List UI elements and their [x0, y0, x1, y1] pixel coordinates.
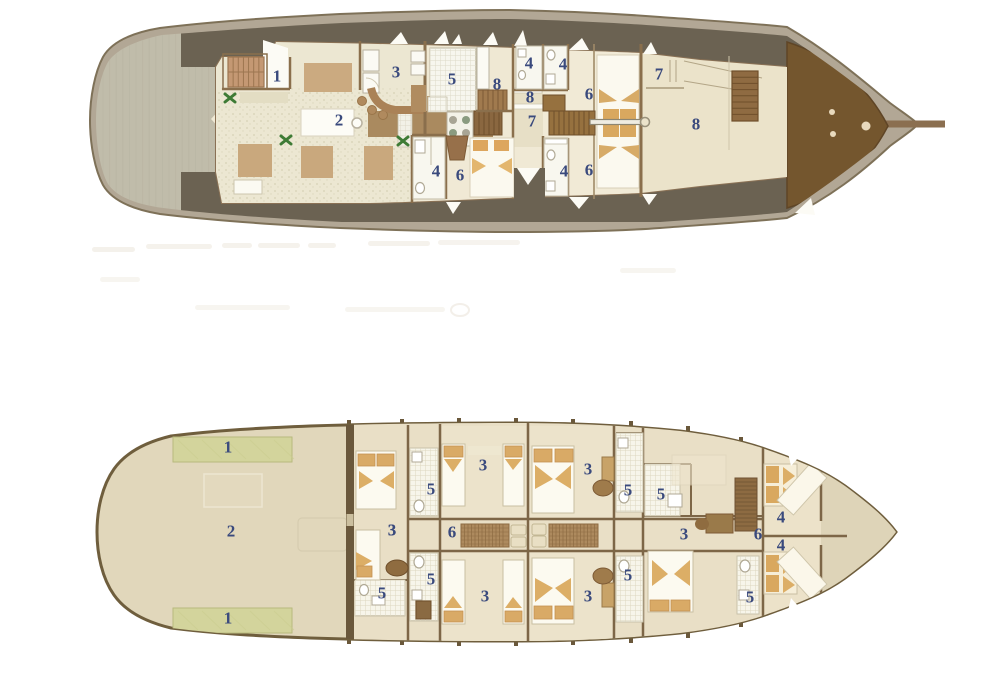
svg-text:5: 5: [746, 588, 755, 607]
svg-text:3: 3: [680, 525, 689, 544]
svg-text:6: 6: [585, 85, 594, 104]
svg-text:1: 1: [273, 67, 282, 86]
svg-text:1: 1: [224, 438, 233, 457]
svg-text:6: 6: [456, 166, 465, 185]
svg-text:5: 5: [624, 481, 633, 500]
svg-text:7: 7: [528, 112, 537, 131]
svg-text:5: 5: [624, 566, 633, 585]
svg-text:4: 4: [432, 162, 441, 181]
svg-text:4: 4: [777, 508, 786, 527]
svg-text:2: 2: [227, 522, 236, 541]
svg-text:8: 8: [493, 75, 502, 94]
svg-text:4: 4: [525, 54, 534, 73]
svg-text:8: 8: [692, 115, 701, 134]
svg-text:5: 5: [378, 584, 387, 603]
svg-text:5: 5: [448, 70, 457, 89]
svg-text:3: 3: [481, 587, 490, 606]
svg-text:6: 6: [754, 525, 763, 544]
svg-text:3: 3: [584, 460, 593, 479]
svg-text:3: 3: [479, 456, 488, 475]
svg-text:4: 4: [777, 536, 786, 555]
svg-text:5: 5: [657, 485, 666, 504]
svg-text:3: 3: [388, 521, 397, 540]
svg-text:4: 4: [559, 55, 568, 74]
svg-text:6: 6: [448, 523, 457, 542]
svg-text:5: 5: [427, 480, 436, 499]
svg-text:6: 6: [585, 161, 594, 180]
svg-text:4: 4: [560, 162, 569, 181]
svg-text:7: 7: [655, 65, 664, 84]
svg-text:2: 2: [335, 111, 344, 130]
svg-text:3: 3: [584, 587, 593, 606]
svg-text:3: 3: [392, 63, 401, 82]
svg-text:5: 5: [427, 570, 436, 589]
svg-text:8: 8: [526, 88, 535, 107]
svg-text:1: 1: [224, 609, 233, 628]
